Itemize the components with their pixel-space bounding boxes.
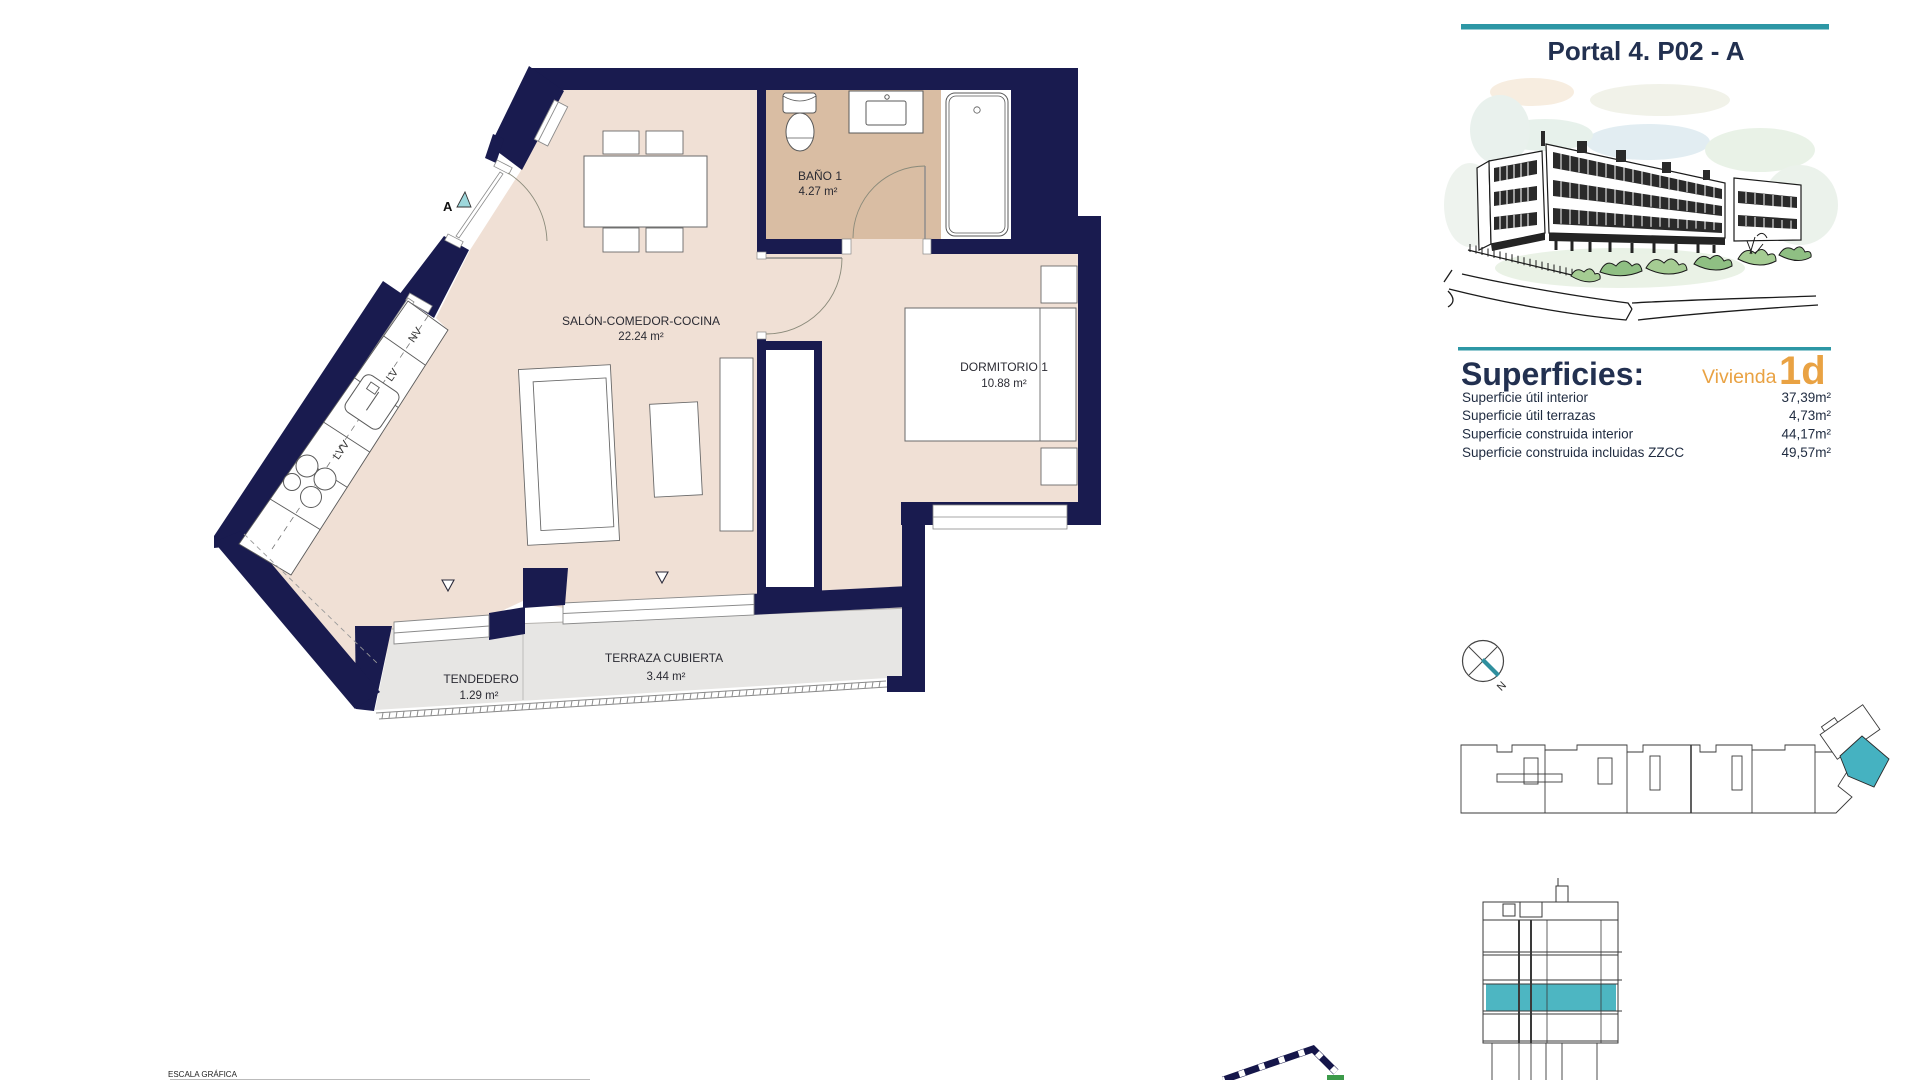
svg-text:37,39m²: 37,39m² <box>1781 390 1831 405</box>
svg-text:Portal 4. P02 - A: Portal 4. P02 - A <box>1548 36 1745 66</box>
svg-text:10.88 m²: 10.88 m² <box>981 378 1027 390</box>
svg-text:Superficie útil terrazas: Superficie útil terrazas <box>1462 408 1596 423</box>
svg-text:4,73m²: 4,73m² <box>1789 408 1832 423</box>
svg-text:22.24 m²: 22.24 m² <box>618 331 664 343</box>
svg-text:A: A <box>443 199 453 214</box>
svg-text:ESCALA GRÁFICA: ESCALA GRÁFICA <box>168 1070 238 1079</box>
svg-text:Superficie construida interior: Superficie construida interior <box>1462 427 1634 442</box>
svg-text:Vivienda: Vivienda <box>1702 366 1777 388</box>
svg-text:TENDEDERO: TENDEDERO <box>443 672 518 686</box>
svg-text:1d: 1d <box>1779 349 1826 393</box>
svg-text:3.44 m²: 3.44 m² <box>647 671 686 683</box>
svg-text:SALÓN-COMEDOR-COCINA: SALÓN-COMEDOR-COCINA <box>562 313 720 328</box>
svg-text:Superficie construida incluida: Superficie construida incluidas ZZCC <box>1462 445 1684 460</box>
svg-text:Superficie útil interior: Superficie útil interior <box>1462 390 1589 405</box>
svg-text:N: N <box>1494 678 1508 692</box>
svg-text:Superficies:: Superficies: <box>1461 356 1644 392</box>
svg-text:49,57m²: 49,57m² <box>1781 445 1831 460</box>
svg-text:BAÑO 1: BAÑO 1 <box>798 169 842 183</box>
svg-text:TERRAZA CUBIERTA: TERRAZA CUBIERTA <box>605 651 723 665</box>
svg-text:DORMITORIO 1: DORMITORIO 1 <box>960 360 1048 374</box>
svg-text:1.29 m²: 1.29 m² <box>460 690 499 702</box>
svg-text:44,17m²: 44,17m² <box>1781 427 1831 442</box>
svg-text:4.27 m²: 4.27 m² <box>799 186 838 198</box>
